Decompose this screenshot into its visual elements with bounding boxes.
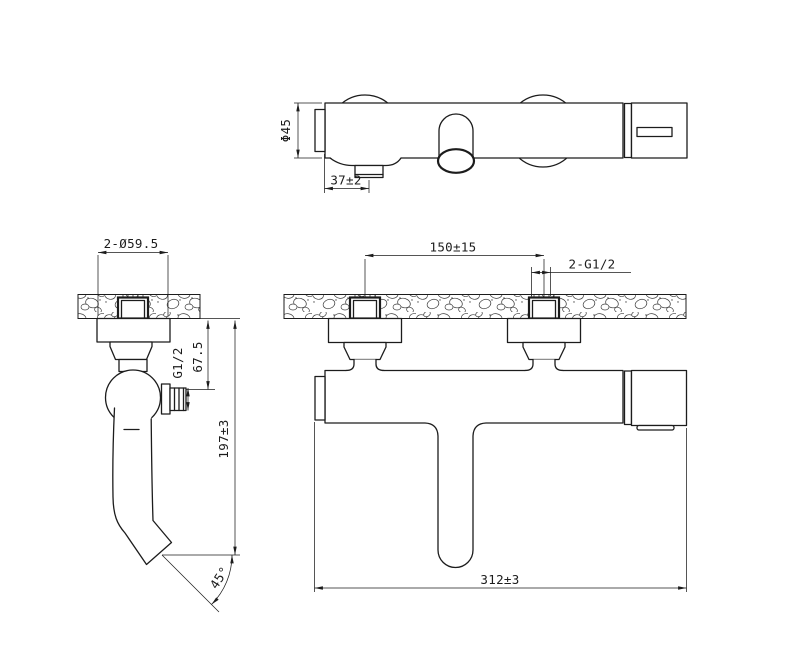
dim-label-overall-height: 197±3 bbox=[216, 419, 231, 458]
dim-outlet-drop: 67.5 bbox=[190, 321, 208, 390]
diverter-cap bbox=[438, 149, 474, 173]
left-escutcheon-front bbox=[329, 319, 402, 343]
handle-block-front bbox=[632, 371, 687, 426]
left-end-cap-front bbox=[315, 377, 325, 421]
wall-section-front bbox=[284, 295, 686, 319]
escutcheon-side bbox=[97, 319, 170, 343]
body-front-view bbox=[325, 371, 623, 568]
dim-label-inlet-thread: 2-G1/2 bbox=[569, 257, 616, 272]
dim-label-outlet-drop: 67.5 bbox=[190, 341, 205, 372]
dim-inlet-spacing: 150±15 bbox=[365, 240, 544, 295]
dim-label-spout-angle: 45° bbox=[207, 564, 232, 592]
left-end-cap-top bbox=[315, 110, 325, 152]
body-top-view bbox=[325, 103, 623, 158]
collar-band-front bbox=[625, 371, 632, 425]
front-view: 150±15 2-G1/2 312±3 bbox=[284, 240, 687, 593]
faucet-technical-drawing: Φ45 37±2 bbox=[0, 0, 800, 667]
drawing-sheet: Φ45 37±2 bbox=[0, 0, 800, 667]
dim-spout-angle: 45° bbox=[162, 555, 240, 612]
top-view: Φ45 37±2 bbox=[278, 95, 687, 193]
dim-inlet-thread: 2-G1/2 bbox=[532, 257, 632, 297]
handle-lever-top bbox=[637, 128, 672, 137]
side-view: 2-Ø59.5 G1/2 67.5 197±3 45° bbox=[78, 236, 240, 612]
dim-label-escutcheon-diameter: 2-Ø59.5 bbox=[104, 236, 159, 251]
right-escutcheon-front bbox=[508, 319, 581, 343]
left-nut-front bbox=[344, 343, 386, 360]
dim-label-outlet-thread: G1/2 bbox=[170, 347, 185, 378]
outlet-flange-side bbox=[162, 384, 171, 414]
dim-label-body-diameter: Φ45 bbox=[278, 119, 293, 142]
right-nut-front bbox=[523, 343, 565, 360]
dim-label-spout-offset: 37±2 bbox=[330, 173, 361, 188]
collar-band-top bbox=[625, 104, 632, 158]
dim-label-inlet-spacing: 150±15 bbox=[430, 240, 477, 255]
dim-overall-width: 312±3 bbox=[315, 422, 687, 592]
handle-lip-front bbox=[637, 426, 674, 431]
mounting-nut-side bbox=[110, 342, 152, 360]
dim-overall-height: 197±3 bbox=[216, 321, 235, 556]
dim-label-overall-width: 312±3 bbox=[480, 572, 519, 587]
